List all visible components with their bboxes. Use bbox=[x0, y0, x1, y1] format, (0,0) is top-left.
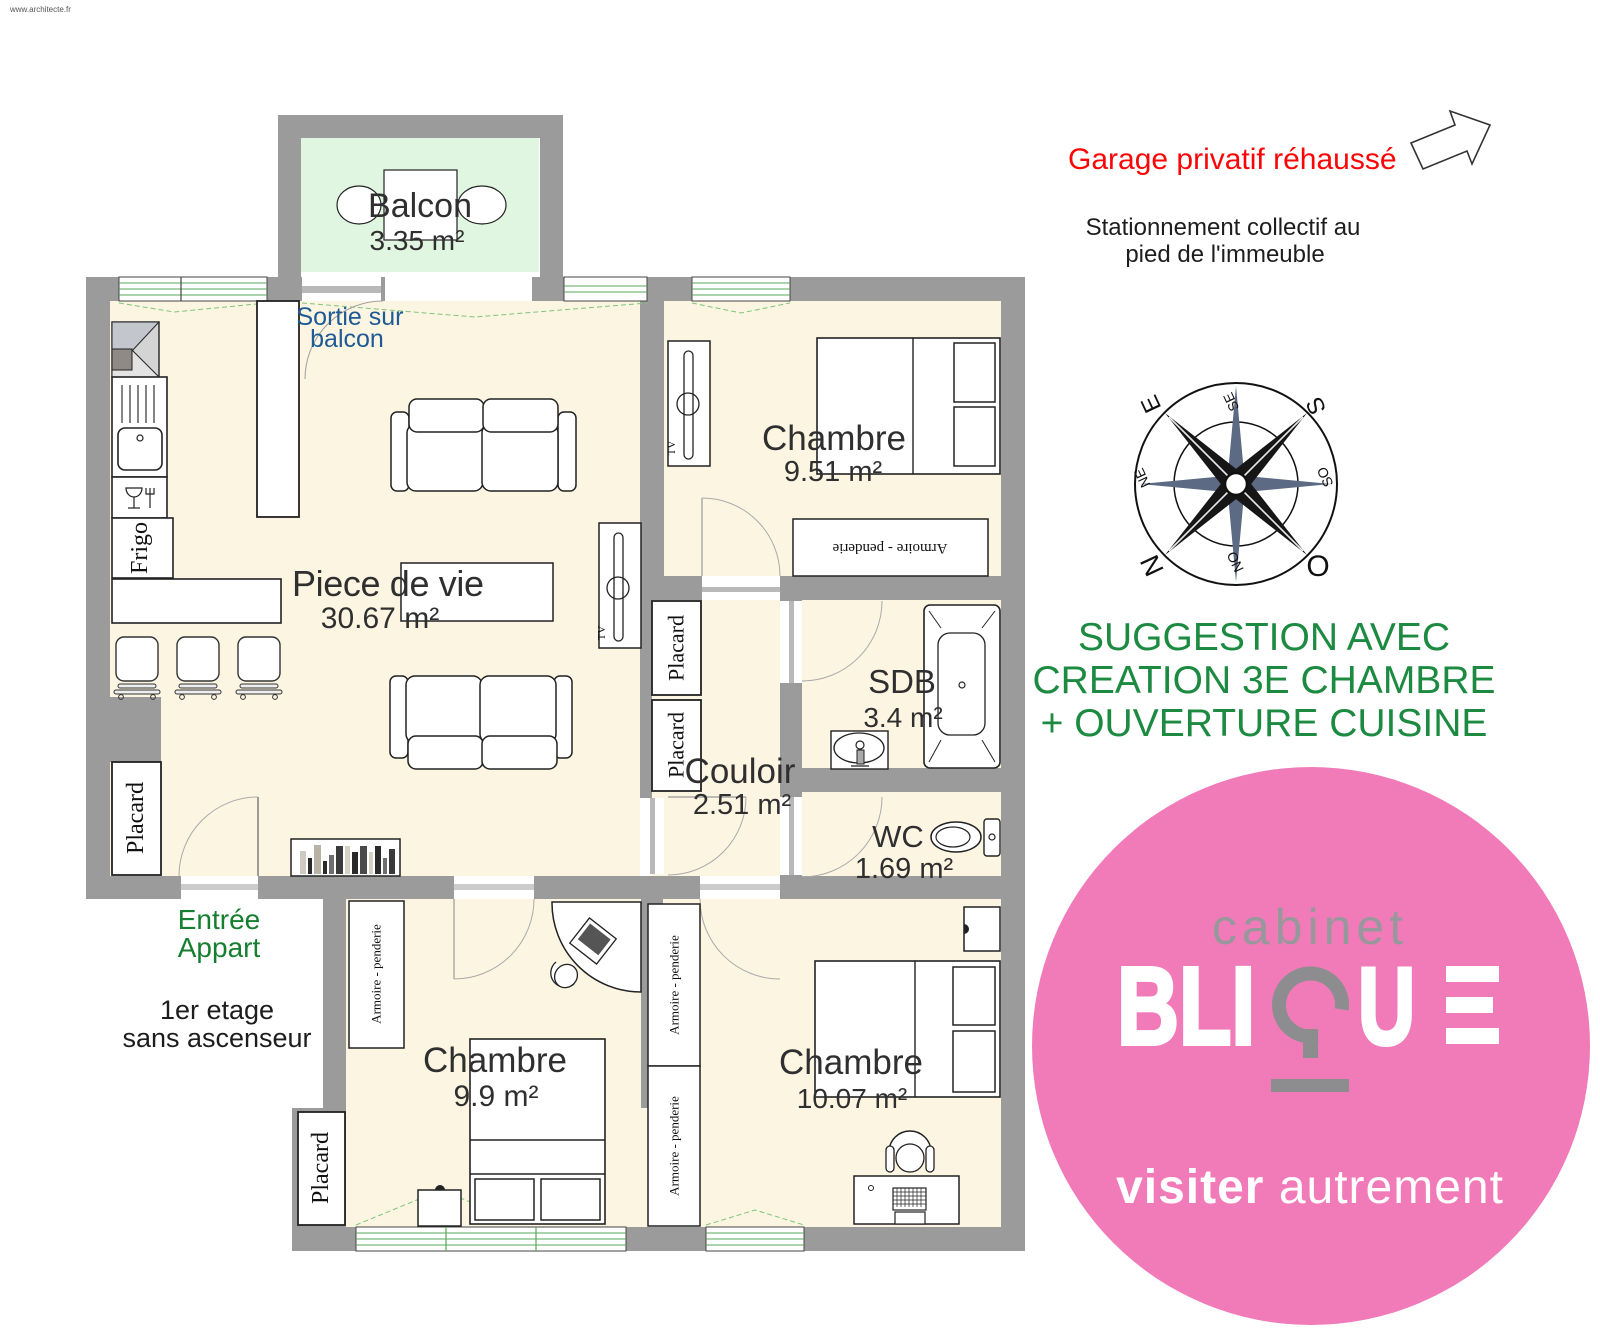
svg-text:pied de l'immeuble: pied de l'immeuble bbox=[1125, 241, 1324, 268]
svg-text:SDB: SDB bbox=[868, 663, 936, 700]
svg-text:2.51 m²: 2.51 m² bbox=[693, 789, 792, 821]
svg-text:Placard: Placard bbox=[664, 615, 689, 681]
svg-text:Garage privatif réhaussé: Garage privatif réhaussé bbox=[1068, 143, 1397, 176]
svg-text:Placard: Placard bbox=[123, 782, 149, 854]
svg-text:Appart: Appart bbox=[178, 932, 261, 963]
svg-text:TV: TV bbox=[666, 441, 678, 456]
svg-text:balcon: balcon bbox=[310, 325, 384, 353]
svg-text:TV: TV bbox=[596, 626, 608, 641]
svg-text:Armoire - penderie: Armoire - penderie bbox=[832, 540, 947, 556]
svg-text:Armoire - penderie: Armoire - penderie bbox=[667, 1096, 682, 1196]
svg-text:+ OUVERTURE CUISINE: + OUVERTURE CUISINE bbox=[1041, 702, 1488, 745]
svg-text:Stationnement collectif au: Stationnement collectif au bbox=[1086, 214, 1361, 241]
svg-text:Armoire - penderie: Armoire - penderie bbox=[667, 935, 682, 1035]
svg-text:30.67 m²: 30.67 m² bbox=[321, 602, 439, 635]
svg-text:WC: WC bbox=[872, 819, 924, 854]
svg-text:Entrée: Entrée bbox=[178, 904, 261, 935]
svg-text:10.07 m²: 10.07 m² bbox=[797, 1083, 908, 1114]
svg-text:1.69 m²: 1.69 m² bbox=[855, 853, 954, 885]
svg-text:3.35 m²: 3.35 m² bbox=[370, 225, 465, 256]
svg-text:Chambre: Chambre bbox=[423, 1041, 567, 1080]
svg-text:Balcon: Balcon bbox=[368, 187, 472, 225]
svg-text:SUGGESTION AVEC: SUGGESTION AVEC bbox=[1078, 616, 1450, 659]
svg-text:BLI: BLI bbox=[1117, 945, 1255, 1068]
svg-text:3.4 m²: 3.4 m² bbox=[863, 702, 942, 733]
svg-text:9.9 m²: 9.9 m² bbox=[453, 1080, 538, 1113]
svg-text:1er etage: 1er etage bbox=[160, 995, 274, 1025]
svg-text:9.51 m²: 9.51 m² bbox=[784, 456, 883, 488]
svg-text:www.architecte.fr: www.architecte.fr bbox=[9, 5, 71, 14]
svg-text:visiter autrement: visiter autrement bbox=[1116, 1161, 1504, 1214]
svg-text:Placard: Placard bbox=[308, 1132, 334, 1204]
svg-text:Armoire - penderie: Armoire - penderie bbox=[369, 924, 384, 1024]
svg-text:sans ascenseur: sans ascenseur bbox=[122, 1023, 311, 1053]
svg-text:Chambre: Chambre bbox=[779, 1043, 923, 1082]
svg-text:Piece de vie: Piece de vie bbox=[292, 563, 484, 604]
svg-text:Frigo: Frigo bbox=[127, 522, 153, 574]
svg-text:U: U bbox=[1358, 945, 1415, 1068]
svg-text:Couloir: Couloir bbox=[685, 752, 796, 791]
svg-text:CREATION 3E CHAMBRE: CREATION 3E CHAMBRE bbox=[1032, 659, 1495, 702]
svg-text:Chambre: Chambre bbox=[762, 419, 906, 458]
svg-text:O: O bbox=[1306, 550, 1329, 583]
